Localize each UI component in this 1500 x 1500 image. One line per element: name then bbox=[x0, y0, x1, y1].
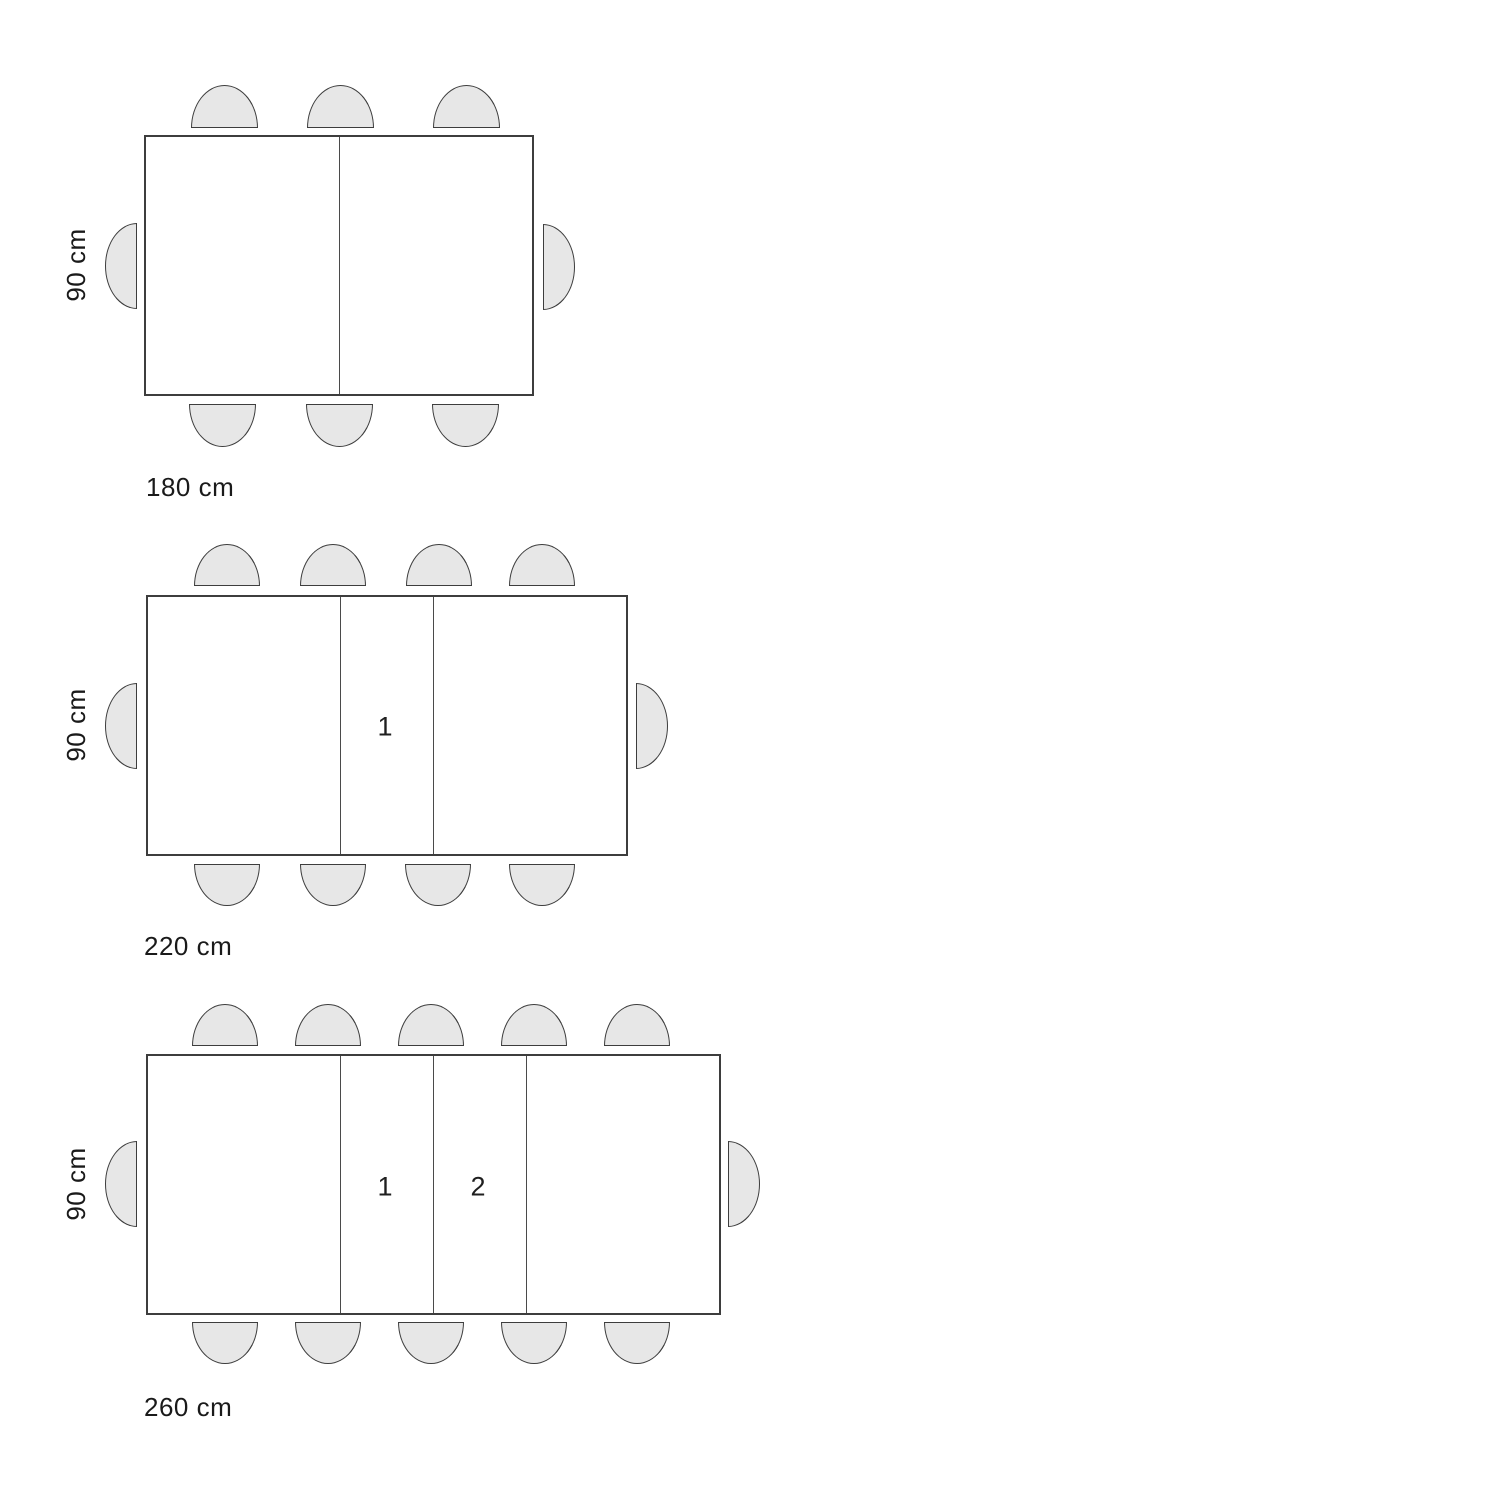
table-surface bbox=[144, 135, 534, 396]
extension-leaf-divider-line bbox=[339, 137, 340, 394]
chair-top-seat bbox=[604, 1004, 670, 1046]
chair-top-seat bbox=[433, 85, 500, 128]
chair-bottom-seat bbox=[189, 404, 256, 447]
extension-leaf-number: 1 bbox=[377, 714, 392, 741]
table-depth-label: 90 cm bbox=[63, 688, 89, 761]
extension-leaf-number: 2 bbox=[470, 1174, 485, 1201]
chair-top-seat bbox=[501, 1004, 567, 1046]
extension-leaf-divider-line bbox=[433, 1056, 434, 1313]
chair-bottom-seat bbox=[398, 1322, 464, 1364]
chair-bottom-seat bbox=[432, 404, 499, 447]
table-size-diagram-sheet: 180 cm90 cm1220 cm90 cm12260 cm90 cm bbox=[0, 0, 1500, 1500]
chair-top-seat bbox=[192, 1004, 258, 1046]
chair-top-seat bbox=[406, 544, 472, 586]
chair-bottom-seat bbox=[405, 864, 471, 906]
chair-bottom-seat bbox=[300, 864, 366, 906]
table-surface bbox=[146, 1054, 721, 1315]
chair-right-end-seat bbox=[728, 1141, 760, 1227]
chair-top-seat bbox=[509, 544, 575, 586]
chair-bottom-seat bbox=[192, 1322, 258, 1364]
extension-leaf-divider-line bbox=[340, 597, 341, 854]
chair-bottom-seat bbox=[194, 864, 260, 906]
chair-right-end-seat bbox=[543, 224, 575, 310]
chair-bottom-seat bbox=[501, 1322, 567, 1364]
table-depth-label: 90 cm bbox=[63, 228, 89, 301]
table-depth-label: 90 cm bbox=[63, 1147, 89, 1220]
chair-top-seat bbox=[300, 544, 366, 586]
extension-leaf-divider-line bbox=[340, 1056, 341, 1313]
chair-bottom-seat bbox=[604, 1322, 670, 1364]
table-width-label: 220 cm bbox=[144, 933, 232, 959]
chair-right-end-seat bbox=[636, 683, 668, 769]
chair-left-end-seat bbox=[105, 223, 137, 309]
table-width-label: 260 cm bbox=[144, 1394, 232, 1420]
chair-top-seat bbox=[191, 85, 258, 128]
chair-top-seat bbox=[295, 1004, 361, 1046]
chair-top-seat bbox=[307, 85, 374, 128]
chair-bottom-seat bbox=[509, 864, 575, 906]
extension-leaf-number: 1 bbox=[377, 1174, 392, 1201]
table-width-label: 180 cm bbox=[146, 474, 234, 500]
extension-leaf-divider-line bbox=[526, 1056, 527, 1313]
chair-top-seat bbox=[398, 1004, 464, 1046]
chair-top-seat bbox=[194, 544, 260, 586]
chair-left-end-seat bbox=[105, 1141, 137, 1227]
chair-bottom-seat bbox=[306, 404, 373, 447]
extension-leaf-divider-line bbox=[433, 597, 434, 854]
chair-bottom-seat bbox=[295, 1322, 361, 1364]
chair-left-end-seat bbox=[105, 683, 137, 769]
